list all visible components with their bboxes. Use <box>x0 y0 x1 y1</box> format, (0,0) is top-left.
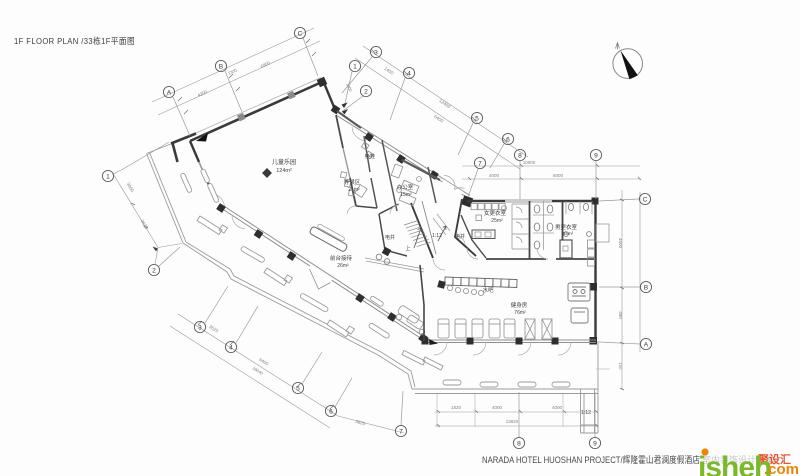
svg-text:1:12: 1:12 <box>581 410 591 416</box>
svg-text:NARADA HOTEL HUOSHAN PROJECT/辉: NARADA HOTEL HUOSHAN PROJECT/辉隆霍山君澜度假酒店 <box>482 454 700 465</box>
svg-text:6900: 6900 <box>260 60 272 69</box>
svg-text:换鞋: 换鞋 <box>365 153 375 160</box>
svg-text:13820: 13820 <box>506 419 519 424</box>
svg-text:35m²: 35m² <box>563 231 574 236</box>
svg-text:电井: 电井 <box>385 234 395 241</box>
svg-text:150: 150 <box>618 363 623 370</box>
svg-text:6400: 6400 <box>433 114 445 124</box>
svg-text:4: 4 <box>229 345 233 352</box>
svg-text:21m²: 21m² <box>348 187 360 193</box>
svg-text:等候区: 等候区 <box>344 178 361 186</box>
svg-text:29040: 29040 <box>252 366 265 377</box>
svg-text:.com: .com <box>764 461 799 476</box>
svg-text:3000: 3000 <box>126 182 136 194</box>
svg-text:水吧: 水吧 <box>482 286 494 294</box>
svg-text:4000: 4000 <box>552 405 563 410</box>
svg-text:7: 7 <box>478 161 482 168</box>
svg-text:健身房: 健身房 <box>511 301 528 309</box>
svg-text:6: 6 <box>329 409 333 416</box>
svg-text:C: C <box>298 31 303 38</box>
svg-text:儿童乐园: 儿童乐园 <box>272 158 296 166</box>
svg-text:12400: 12400 <box>438 98 452 109</box>
svg-text:6: 6 <box>506 137 510 144</box>
svg-text:电井: 电井 <box>455 233 465 240</box>
svg-text:男更衣室: 男更衣室 <box>555 223 578 231</box>
svg-text:6000: 6000 <box>553 173 564 178</box>
svg-text:3: 3 <box>198 325 202 332</box>
svg-text:8: 8 <box>517 441 521 448</box>
svg-text:前台接待: 前台接待 <box>330 254 353 262</box>
svg-text:B: B <box>219 64 224 71</box>
svg-text:1400: 1400 <box>383 66 395 76</box>
svg-text:6400: 6400 <box>258 357 270 367</box>
svg-text:1:12: 1:12 <box>432 233 442 239</box>
svg-text:1: 1 <box>353 64 357 71</box>
svg-text:上: 上 <box>405 245 410 252</box>
svg-text:4: 4 <box>407 71 411 78</box>
svg-text:7: 7 <box>399 429 403 436</box>
svg-text:1820: 1820 <box>451 405 462 410</box>
svg-text:3625: 3625 <box>208 324 220 334</box>
svg-text:9: 9 <box>593 441 597 448</box>
svg-text:4000: 4000 <box>492 405 503 410</box>
svg-text:3825: 3825 <box>355 419 366 427</box>
svg-text:3625: 3625 <box>140 219 150 231</box>
svg-text:10000: 10000 <box>523 160 536 165</box>
svg-text:1: 1 <box>106 174 110 181</box>
svg-text:A: A <box>167 90 172 97</box>
svg-text:办公室: 办公室 <box>397 183 414 191</box>
svg-text:1F FLOOR PLAN /33栋1F平面图: 1F FLOOR PLAN /33栋1F平面图 <box>14 36 135 46</box>
svg-text:15m²: 15m² <box>400 192 412 198</box>
svg-text:8: 8 <box>518 153 522 160</box>
svg-text:B: B <box>644 285 649 292</box>
svg-text:女更衣室: 女更衣室 <box>484 209 507 217</box>
svg-text:C: C <box>643 197 648 204</box>
svg-text:9: 9 <box>594 153 598 160</box>
svg-text:5: 5 <box>296 386 300 393</box>
svg-text:3: 3 <box>374 50 378 57</box>
svg-text:400: 400 <box>618 311 623 319</box>
svg-text:2: 2 <box>152 268 156 275</box>
svg-text:25m²: 25m² <box>491 218 503 224</box>
svg-text:4500: 4500 <box>618 238 623 249</box>
svg-text:26m²: 26m² <box>337 263 349 269</box>
svg-text:76m²: 76m² <box>514 310 526 316</box>
svg-text:5: 5 <box>475 116 479 123</box>
svg-text:4000: 4000 <box>489 173 500 178</box>
svg-text:124m²: 124m² <box>276 168 292 174</box>
svg-text:A: A <box>644 342 649 349</box>
svg-text:jsheh: jsheh <box>697 451 771 476</box>
svg-text:2: 2 <box>364 89 368 96</box>
svg-text:4200: 4200 <box>197 89 209 98</box>
